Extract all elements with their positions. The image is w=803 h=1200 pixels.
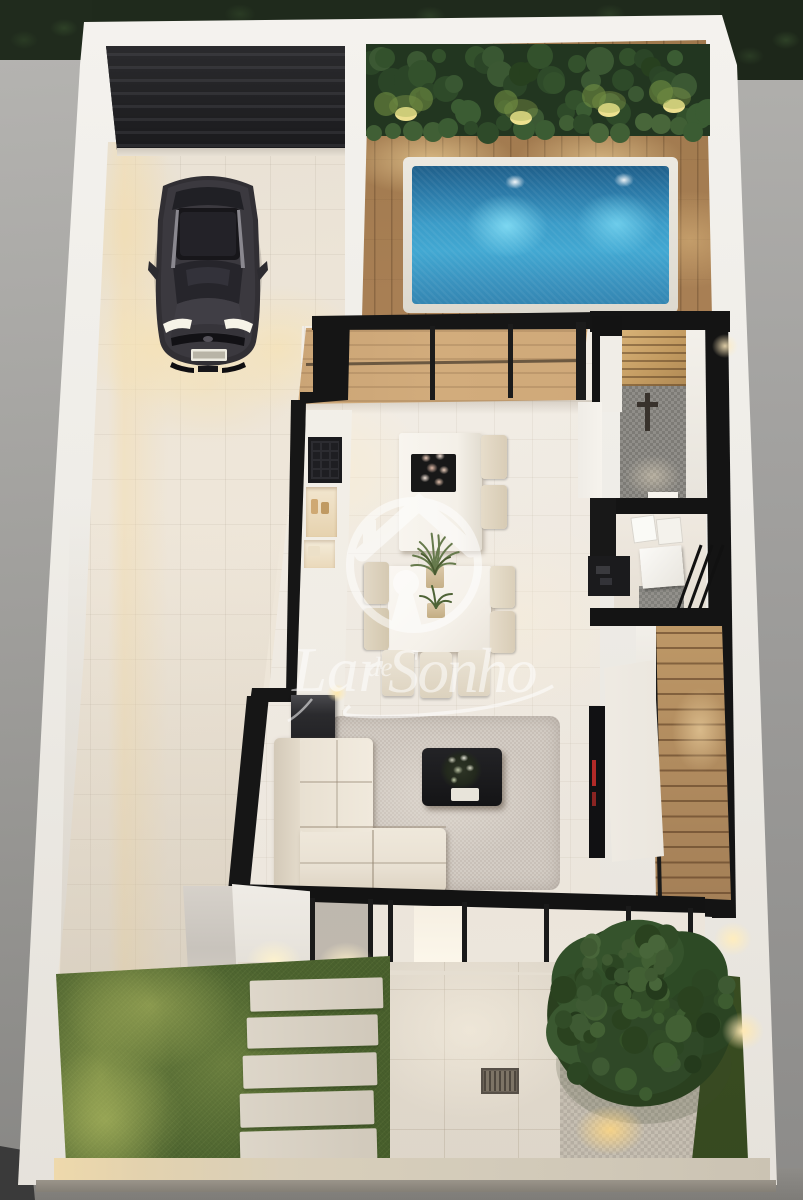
svg-text:Sonho: Sonho	[388, 636, 536, 706]
